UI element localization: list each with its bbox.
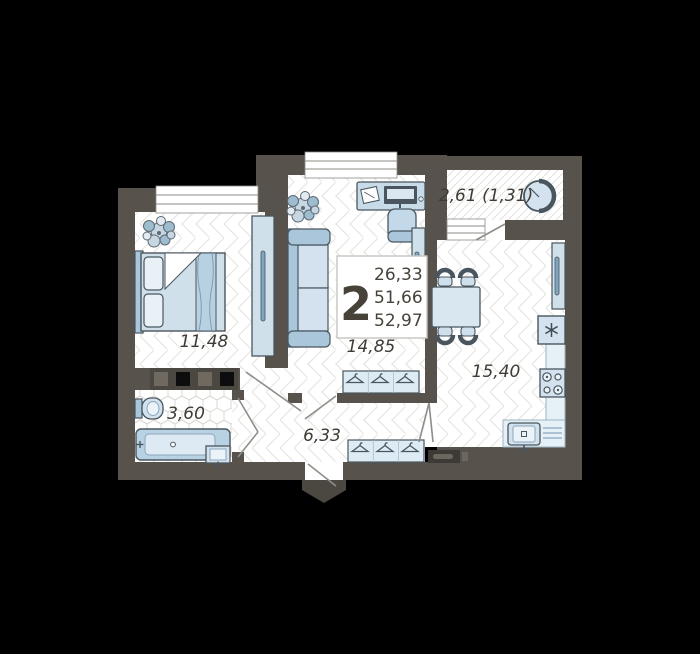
paper-icon xyxy=(361,186,380,203)
kitchen-area-label: 15,40 xyxy=(472,362,521,382)
sofa-icon xyxy=(288,229,330,347)
bed-icon xyxy=(135,251,225,333)
apartment-area-value: 51,66 xyxy=(374,288,423,308)
bedroom-window xyxy=(156,186,258,213)
stove-icon xyxy=(540,369,565,397)
total-area-value: 52,97 xyxy=(374,311,423,331)
rooms-count: 2 xyxy=(340,277,372,331)
wall-balcony-bottom xyxy=(505,220,565,240)
dining-table-icon xyxy=(432,287,480,327)
toilet-icon xyxy=(135,398,163,419)
pillow xyxy=(144,294,163,327)
kitchen-cabinet-icon xyxy=(552,243,565,309)
bathroom-area-label: 3,60 xyxy=(167,404,205,424)
balcony-area-label: 2,61 (1,31) xyxy=(439,186,533,206)
fridge-icon xyxy=(538,316,565,344)
desk-icon xyxy=(357,182,425,210)
pillow xyxy=(144,257,163,290)
bedroom-wardrobe-icon xyxy=(252,216,274,356)
wall-living-bottom-a xyxy=(288,393,302,403)
wall-right xyxy=(565,235,582,480)
living-room-area-label: 14,85 xyxy=(347,337,396,357)
wall-balcony-top xyxy=(438,156,582,170)
wall-left xyxy=(118,188,135,480)
hanger-wardrobe-icon xyxy=(348,440,424,462)
wall-living-bottom-b xyxy=(337,393,437,403)
hanger-wardrobe-icon xyxy=(343,371,419,393)
floor-plan: 2 26,33 51,66 52,97 11,48 14,85 15,40 3,… xyxy=(0,0,700,654)
wall-bottom-mid xyxy=(343,462,437,480)
vent-shaft xyxy=(150,368,238,390)
apartment-info-box: 2 26,33 51,66 52,97 xyxy=(337,256,427,338)
floor-plan-canvas: 2 26,33 51,66 52,97 11,48 14,85 15,40 3,… xyxy=(0,0,700,654)
bedroom-area-label: 11,48 xyxy=(180,332,229,352)
living-area-value: 26,33 xyxy=(374,265,423,285)
wall-balcony-right xyxy=(563,156,582,240)
wall-bottom-left xyxy=(118,462,305,480)
hallway-area-label: 6,33 xyxy=(303,426,341,446)
living-window xyxy=(305,152,397,178)
balcony-window xyxy=(447,219,485,240)
